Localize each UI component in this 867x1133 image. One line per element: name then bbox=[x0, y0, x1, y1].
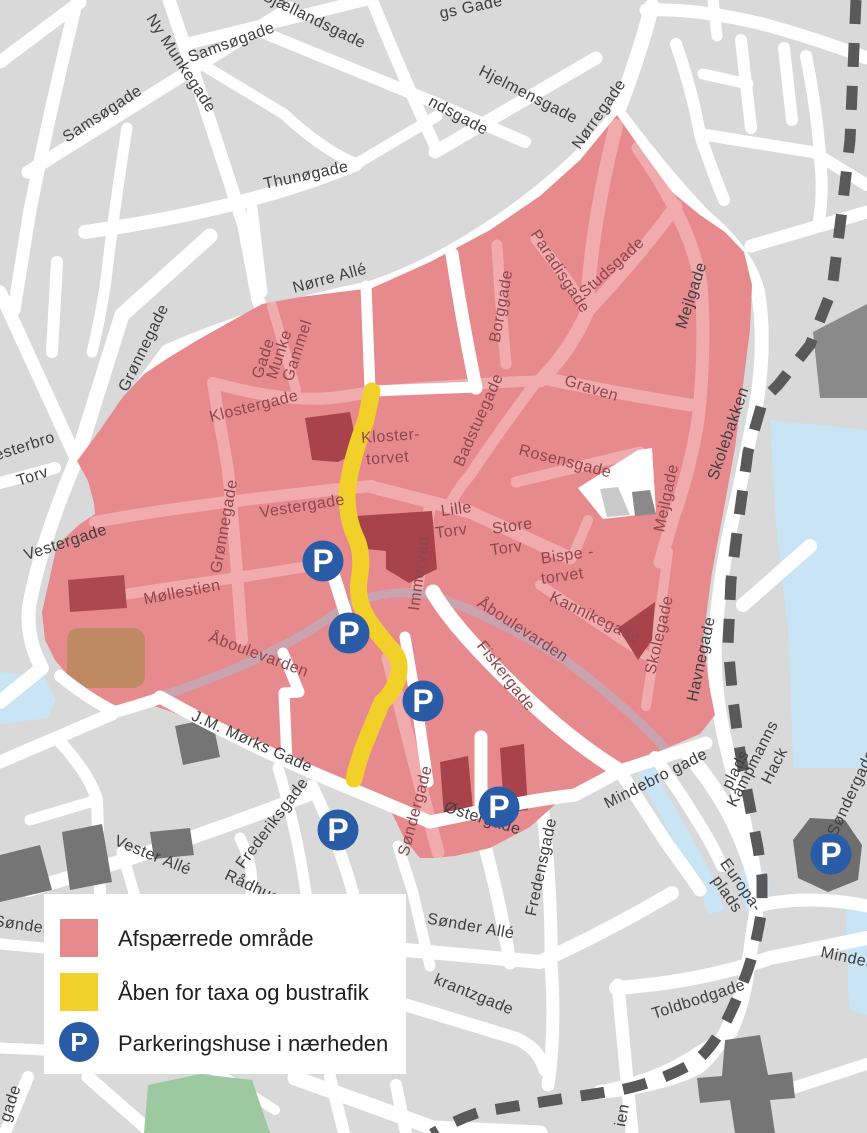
svg-text:P: P bbox=[412, 683, 433, 719]
svg-text:P: P bbox=[70, 1027, 87, 1057]
svg-text:torvet: torvet bbox=[366, 449, 410, 469]
svg-text:Åben for taxa og bustrafik: Åben for taxa og bustrafik bbox=[118, 980, 370, 1005]
svg-text:Afspærrede område: Afspærrede område bbox=[118, 926, 314, 951]
svg-text:P: P bbox=[312, 543, 333, 579]
svg-text:P: P bbox=[820, 836, 841, 872]
svg-text:Parkeringshuse i nærheden: Parkeringshuse i nærheden bbox=[118, 1031, 388, 1056]
svg-text:P: P bbox=[338, 615, 359, 651]
svg-text:P: P bbox=[488, 789, 509, 825]
svg-text:P: P bbox=[327, 812, 348, 848]
